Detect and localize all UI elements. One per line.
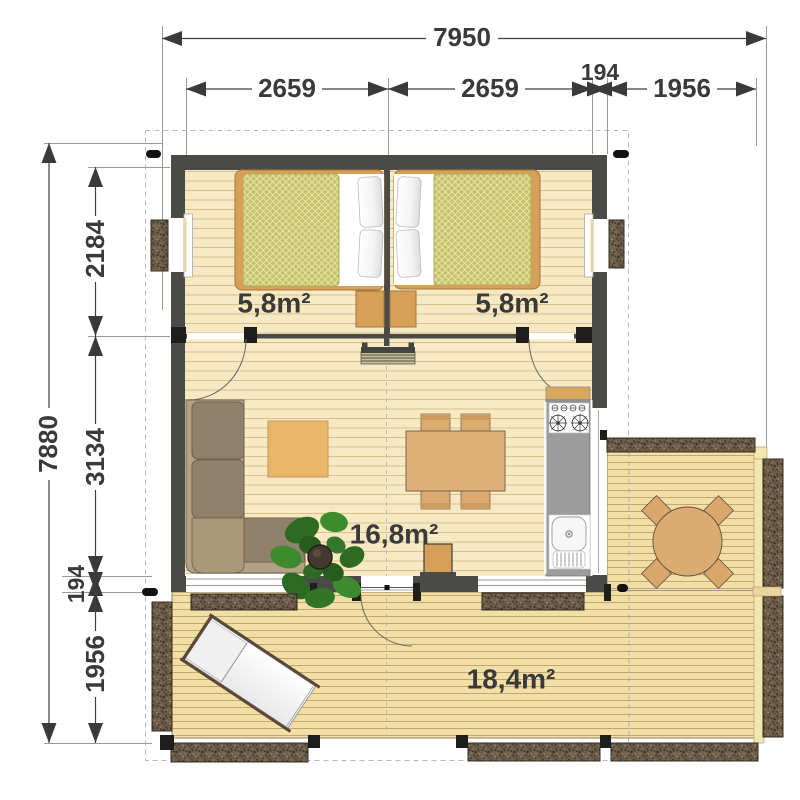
svg-text:194: 194	[581, 59, 620, 85]
svg-text:1956: 1956	[80, 635, 110, 693]
svg-text:2659: 2659	[461, 73, 519, 103]
svg-text:5,8m²: 5,8m²	[475, 288, 548, 319]
svg-text:5,8m²: 5,8m²	[237, 288, 310, 319]
svg-text:2184: 2184	[80, 220, 110, 278]
svg-text:7880: 7880	[33, 415, 63, 473]
svg-text:1956: 1956	[653, 73, 711, 103]
svg-text:2659: 2659	[258, 73, 316, 103]
svg-text:194: 194	[63, 565, 89, 604]
svg-text:7950: 7950	[433, 22, 491, 52]
svg-text:18,4m²: 18,4m²	[467, 664, 556, 695]
svg-text:16,8m²: 16,8m²	[350, 519, 439, 550]
svg-text:3134: 3134	[80, 428, 110, 486]
